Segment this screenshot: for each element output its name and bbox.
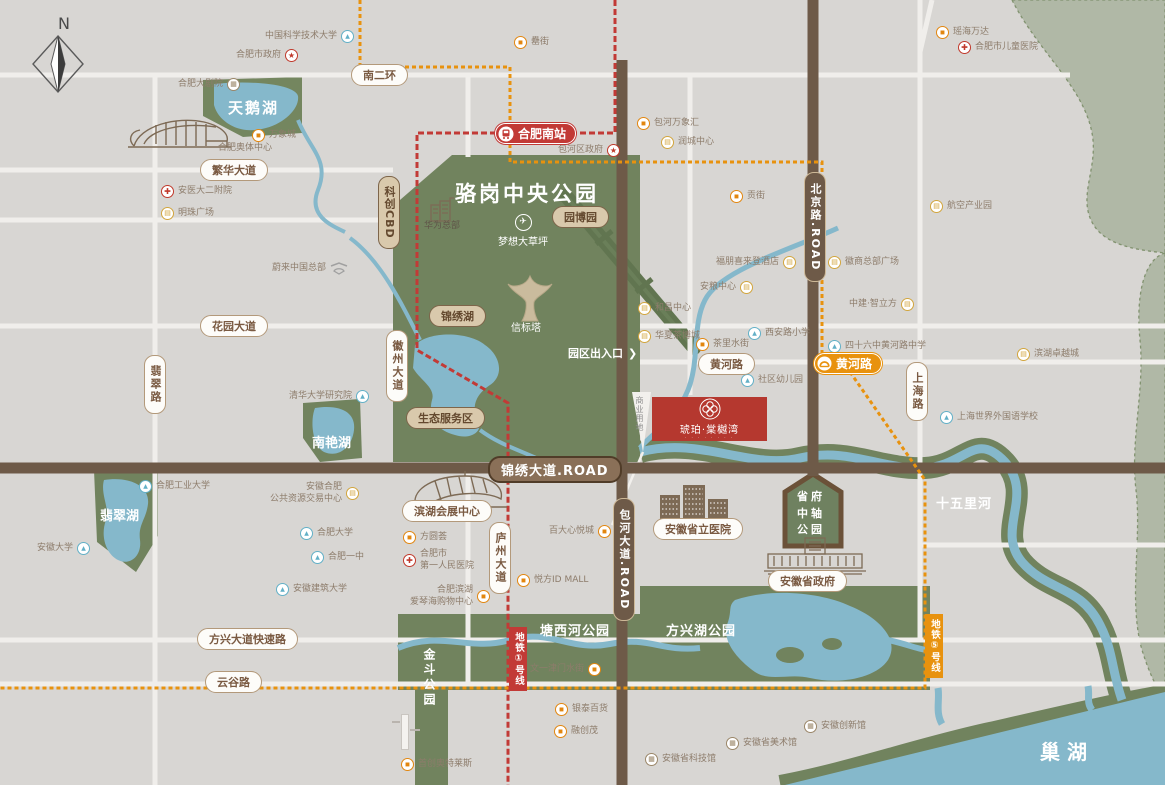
poi-hfut: 合肥工业大学 [139, 480, 210, 493]
poi-city-gov: 合肥市政府 [236, 49, 298, 62]
road-pill-shanghai: 上海路 [906, 362, 928, 421]
school-icon [741, 374, 754, 387]
road-pill-huizhou: 徽州大道 [386, 330, 408, 402]
poi-grand-theatre: 合肥大剧院 [178, 78, 240, 91]
poi-fangyuanhui: 方圆荟 [403, 531, 447, 544]
poi-aviation-park: 航空产业园 [930, 200, 992, 213]
poi-baohe-mixc: 包河万象汇 [637, 117, 699, 130]
beacon-tower-label: 信标塔 [511, 319, 541, 334]
poi-intime: 银泰百货 [555, 703, 608, 716]
road-pill-fanhua: 繁华大道 [200, 159, 268, 181]
pill-kechuang: 科创CBD [378, 176, 400, 249]
mall-icon [598, 525, 611, 538]
project-subtext: · · · · · · · · [685, 436, 734, 440]
business-icon [661, 136, 674, 149]
poi-wenyi-water-street: 文一津门水街 [530, 663, 601, 676]
business-icon [638, 330, 651, 343]
poi-huawei-hq: 华为总部 [424, 221, 460, 233]
commercial-land-label: 商业用地 [634, 396, 645, 432]
nio-logo-icon [330, 262, 348, 275]
poi-nio-hq: 蔚来中国总部 [272, 262, 348, 275]
gov-icon [607, 144, 620, 157]
business-icon [346, 487, 359, 500]
poi-sunac-mall: 融创茂 [554, 725, 598, 738]
business-icon [828, 256, 841, 269]
poi-runcheng: 润城中心 [661, 136, 714, 149]
road-pill-baohe: 包河大道.ROAD [613, 498, 635, 621]
road-pill-huanghe: 黄河路 [698, 353, 755, 375]
metro-line5-banner: 地铁⑤号线 [925, 614, 943, 678]
museum-icon [804, 720, 817, 733]
mall-icon [252, 129, 265, 142]
pill-jinxiuhu: 锦绣湖 [429, 305, 486, 327]
chevron-right-icon: ❯ [628, 347, 637, 360]
road-pill-yungu: 云谷路 [205, 671, 262, 693]
mall-icon [554, 725, 567, 738]
poi-id-mall: 悦方ID MALL [517, 574, 588, 587]
business-icon [161, 207, 174, 220]
compass-icon [30, 33, 86, 95]
business-icon [740, 281, 753, 294]
pill-shengtai: 生态服务区 [406, 407, 485, 429]
poi-anhui-jianzhu: 安徽建筑大学 [276, 583, 347, 596]
gov-icon [285, 49, 298, 62]
metro-line1-banner: 地铁①号线 [509, 627, 527, 691]
swan-lake-label: 天鹅湖 [228, 97, 279, 118]
poi-yaohai-wanda: 瑶海万达 [936, 26, 989, 39]
poi-chali-street: 茶里水街 [696, 338, 749, 351]
compass-n-label: N [42, 14, 86, 33]
poi-ustc: 中国科学技术大学 [265, 30, 354, 43]
poi-baohe-gov: 包河区政府 [558, 144, 620, 157]
mall-icon [401, 758, 414, 771]
metro-icon [817, 356, 832, 371]
poi-mingzhu-plaza: 明珠广场 [161, 207, 214, 220]
poi-huishang-plaza: 徽商总部广场 [828, 256, 899, 269]
poi-kindergarten: 社区幼儿园 [741, 374, 803, 387]
mall-icon [588, 663, 601, 676]
poi-tea-expo-city: 华夏茶博城 [638, 330, 700, 343]
museum-icon [726, 737, 739, 750]
pill-convention: 滨湖会展中心 [402, 500, 492, 522]
jindou-park-label: 金斗公园 [421, 648, 438, 708]
school-icon [77, 542, 90, 555]
school-icon [356, 390, 369, 403]
poi-hefei-university: 合肥大学 [300, 527, 353, 540]
hospital-buildings-sketch [658, 481, 732, 521]
project-logo-icon [699, 398, 721, 420]
road-pill-beijing: 北京路.ROAD [804, 172, 826, 282]
poi-shouchuang-outlets: 首创奥特莱斯 [401, 758, 472, 771]
park-exit: 园区出入口❯ [568, 345, 637, 361]
tangxihe-park-label: 塘西河公园 [540, 620, 610, 639]
school-icon [828, 340, 841, 353]
project-badge: 琥珀·棠樾湾 · · · · · · · · [652, 397, 767, 441]
hospital-icon [958, 41, 971, 54]
school-icon [300, 527, 313, 540]
mall-icon [936, 26, 949, 39]
shengfu-park-label: 省府 中轴 公园 [797, 489, 825, 539]
dream-lawn: ✈ 梦想大草坪 [498, 214, 548, 248]
poi-hechang-center: 和昌中心 [638, 302, 691, 315]
scale-marker [401, 714, 409, 750]
poi-innovation-museum: 安徽创新馆 [804, 720, 866, 733]
shiwulihe-river-label: 十五里河 [936, 493, 992, 512]
poi-sheraton: 福朋喜来登酒店 [716, 256, 796, 269]
poi-46th-school: 四十六中黄河路中学 [828, 340, 926, 353]
poi-zhongjian-cube: 中建·智立方 [849, 298, 914, 311]
pill-yuanbo: 园博园 [552, 206, 609, 228]
mall-icon [514, 36, 527, 49]
hospital-icon [161, 185, 174, 198]
business-icon [783, 256, 796, 269]
nanyan-lake-label: 南艳湖 [312, 432, 351, 451]
poi-anliang-center: 安粮中心 [700, 281, 753, 294]
poi-mixc: 万象城 [252, 129, 296, 142]
road-pill-huayuan: 花园大道 [200, 315, 268, 337]
poi-shanghai-school: 上海世界外国语学校 [940, 411, 1038, 424]
huawei-hq-sketch [428, 197, 454, 223]
poi-anyi-hospital: 安医大二附院 [161, 185, 232, 198]
mall-icon [477, 590, 490, 603]
school-icon [139, 480, 152, 493]
business-icon [638, 302, 651, 315]
road-pill-feicui: 翡翠路 [144, 355, 166, 414]
hospital-icon [403, 554, 416, 567]
poi-science-museum: 安徽省科技馆 [645, 753, 716, 766]
mall-icon [637, 117, 650, 130]
school-icon [341, 30, 354, 43]
poi-first-people-hospital: 合肥市 第一人民医院 [403, 549, 474, 572]
mall-icon [403, 531, 416, 544]
plane-icon: ✈ [515, 214, 532, 231]
museum-icon [645, 753, 658, 766]
mall-icon [555, 703, 568, 716]
business-icon [901, 298, 914, 311]
poi-baida-xinyuecheng: 百大心悦城 [549, 525, 611, 538]
pill-gov: 安徽省政府 [768, 570, 847, 592]
compass: N [30, 14, 86, 95]
school-icon [311, 551, 324, 564]
road-pill-fangxing: 方兴大道快速路 [197, 628, 298, 650]
poi-xian-road-school: 西安路小学 [748, 327, 810, 340]
fangxinghu-park-label: 方兴湖公园 [666, 620, 736, 639]
train-icon [498, 126, 514, 142]
poi-anhui-university: 安徽大学 [37, 542, 90, 555]
poi-resource-center: 安徽合肥 公共资源交易中心 [270, 482, 359, 505]
poi-leijie: 罍街 [514, 36, 549, 49]
metro-station-hefei-south: 合肥南站 [495, 123, 576, 144]
road-pill-nanerhuan: 南二环 [351, 64, 408, 86]
project-name: 琥珀·棠樾湾 [680, 421, 739, 436]
mall-icon [517, 574, 530, 587]
poi-children-hospital: 合肥市儿童医院 [958, 41, 1038, 54]
road-pill-luzhou: 庐州大道 [489, 522, 511, 594]
poi-binhu-zhuoyue: 滨湖卓越城 [1017, 348, 1079, 361]
park-title: 骆岗中央公园 [455, 178, 599, 208]
metro-station-huanghe: 黄河路 [814, 353, 882, 374]
feicui-lake-label: 翡翠湖 [100, 505, 139, 524]
poi-tsinghua-institute: 清华大学研究院 [289, 390, 369, 403]
road-pill-jinxiu: 锦绣大道.ROAD [488, 456, 622, 483]
school-icon [748, 327, 761, 340]
school-icon [940, 411, 953, 424]
business-icon [930, 200, 943, 213]
business-icon [1017, 348, 1030, 361]
mall-icon [730, 190, 743, 203]
chaohu-lake-label: 巢湖 [1040, 736, 1094, 765]
museum-icon [227, 78, 240, 91]
poi-art-museum: 安徽省美术馆 [726, 737, 797, 750]
poi-gongjie: 贡街 [730, 190, 765, 203]
poi-olympic-center: 合肥奥体中心 [218, 143, 272, 155]
school-icon [276, 583, 289, 596]
poi-hefei-no1-school: 合肥一中 [311, 551, 364, 564]
location-map: N [0, 0, 1165, 785]
poi-aegean-mall: 合肥滨湖 爱琴海购物中心 [410, 585, 490, 608]
pill-hospital: 安徽省立医院 [653, 518, 743, 540]
beacon-tower-sketch [506, 272, 554, 322]
